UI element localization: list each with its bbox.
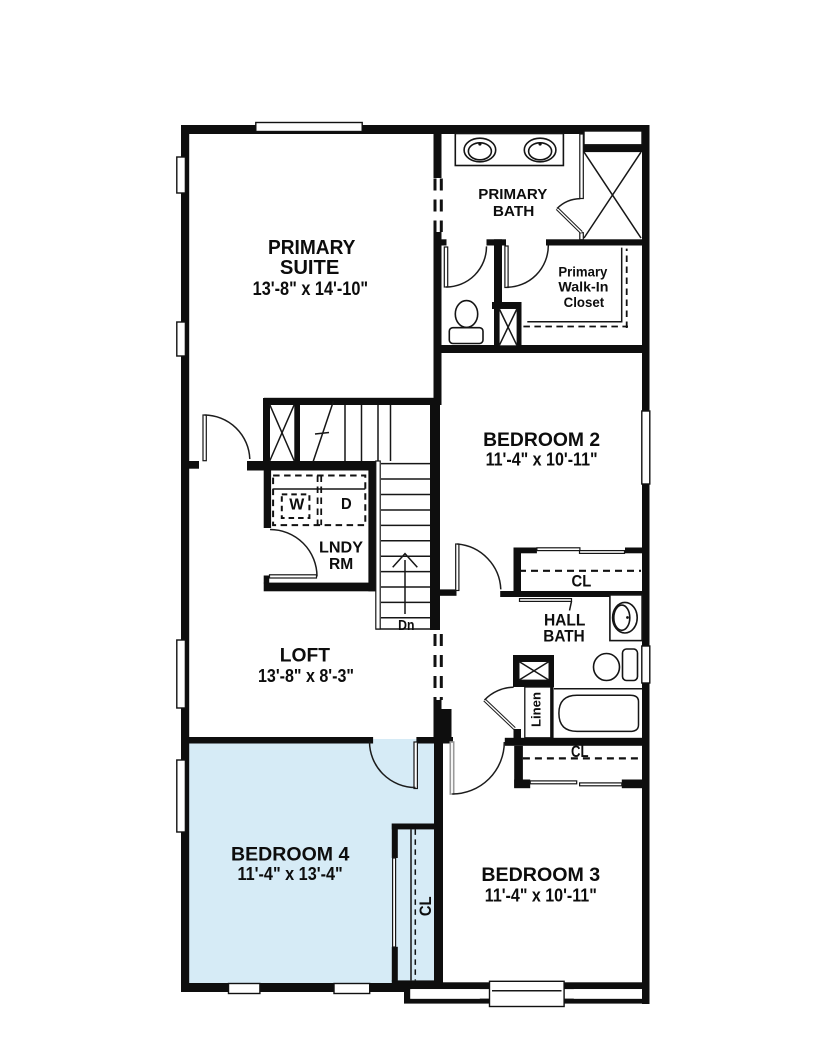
svg-text:11'-4" x 10'-11": 11'-4" x 10'-11": [485, 886, 597, 906]
svg-text:CL: CL: [417, 896, 435, 916]
svg-text:BEDROOM 4: BEDROOM 4: [231, 844, 349, 866]
svg-text:BATH: BATH: [543, 628, 584, 646]
svg-text:BATH: BATH: [493, 203, 535, 220]
svg-text:Walk-In: Walk-In: [558, 280, 608, 295]
svg-text:PRIMARY: PRIMARY: [478, 186, 547, 203]
svg-text:Primary: Primary: [558, 265, 607, 280]
svg-text:11'-4" x 10'-11": 11'-4" x 10'-11": [486, 450, 598, 470]
svg-text:11'-4" x 13'-4": 11'-4" x 13'-4": [238, 864, 343, 884]
svg-text:13'-8" x 8'-3": 13'-8" x 8'-3": [258, 665, 354, 686]
svg-text:RM: RM: [329, 556, 353, 573]
svg-text:LOFT: LOFT: [280, 645, 330, 667]
svg-text:Linen: Linen: [529, 692, 544, 727]
svg-text:13'-8" x 14'-10": 13'-8" x 14'-10": [253, 279, 369, 300]
svg-text:Dn: Dn: [398, 617, 414, 634]
svg-text:PRIMARY: PRIMARY: [268, 237, 356, 259]
svg-text:LNDY: LNDY: [319, 540, 363, 557]
svg-text:W: W: [289, 497, 305, 514]
svg-text:Closet: Closet: [564, 295, 605, 310]
svg-text:CL: CL: [572, 573, 592, 591]
svg-text:CL: CL: [571, 743, 589, 761]
svg-text:D: D: [341, 496, 352, 513]
svg-text:SUITE: SUITE: [280, 257, 340, 279]
svg-text:BEDROOM 2: BEDROOM 2: [483, 429, 600, 451]
svg-text:BEDROOM 3: BEDROOM 3: [481, 864, 600, 886]
